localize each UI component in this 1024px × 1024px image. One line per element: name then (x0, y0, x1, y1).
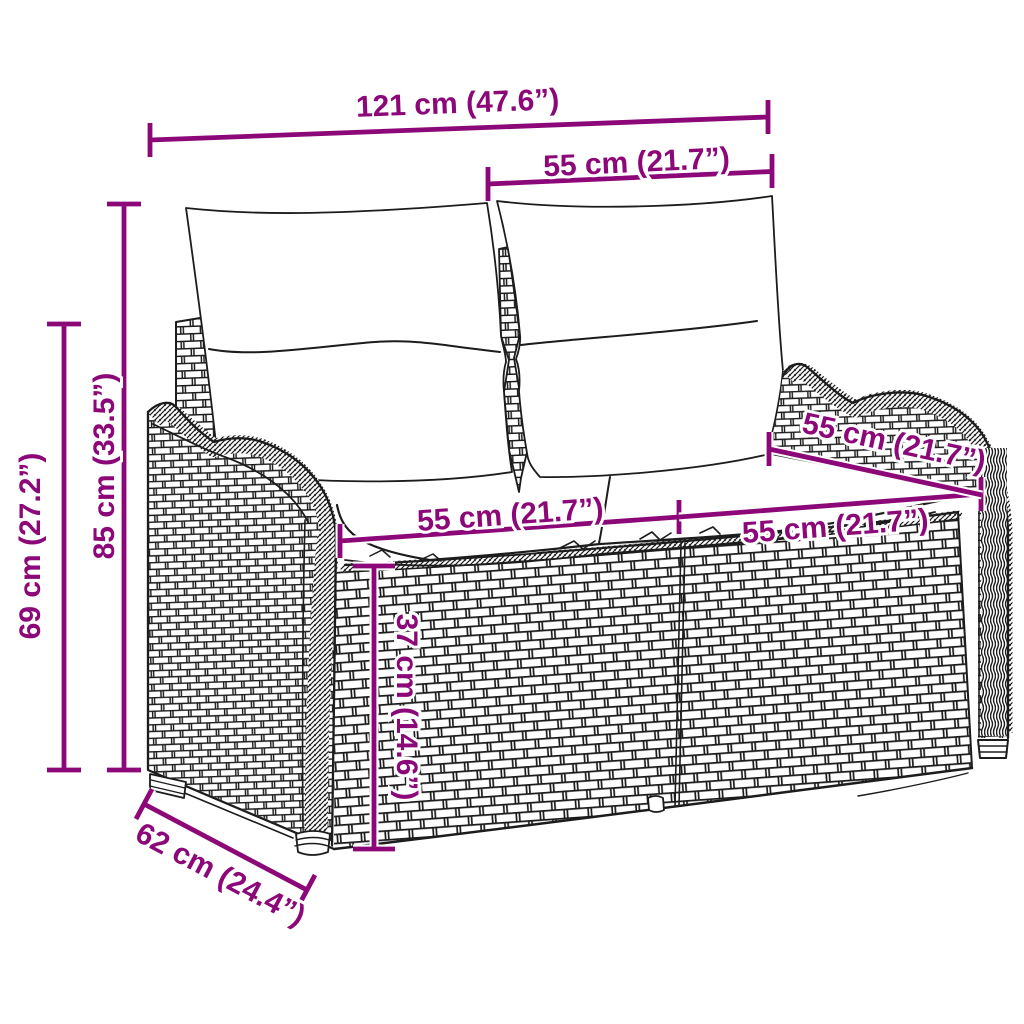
svg-text:37 cm (14.6”): 37 cm (14.6”) (390, 614, 423, 801)
svg-text:69 cm (27.2”): 69 cm (27.2”) (14, 453, 47, 640)
svg-text:85 cm (33.5”): 85 cm (33.5”) (88, 373, 121, 560)
